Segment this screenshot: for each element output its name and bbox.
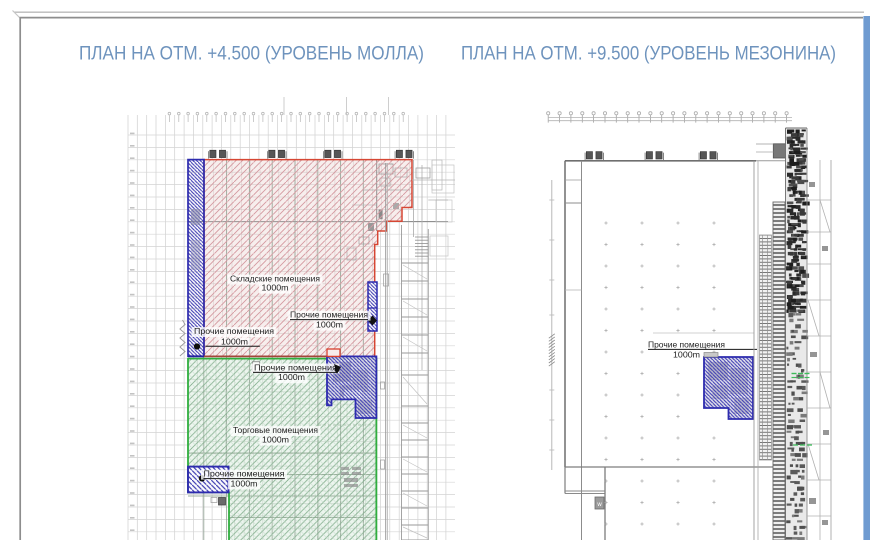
svg-text:Прочие помещения: Прочие помещения <box>648 339 725 349</box>
svg-text:1000m: 1000m <box>262 435 289 445</box>
svg-text:Прочие помещения: Прочие помещения <box>254 362 337 372</box>
svg-text:1000m: 1000m <box>316 320 343 330</box>
svg-text:ПЛАН НА ОТМ. +4.500 (УРОВЕНЬ М: ПЛАН НА ОТМ. +4.500 (УРОВЕНЬ МОЛЛА) <box>79 44 424 65</box>
svg-text:1000m: 1000m <box>262 283 289 293</box>
svg-text:1000m: 1000m <box>278 372 305 382</box>
svg-text:1000m: 1000m <box>673 349 700 359</box>
svg-text:ПЛАН НА ОТМ. +9.500 (УРОВЕНЬ М: ПЛАН НА ОТМ. +9.500 (УРОВЕНЬ МЕЗОНИНА) <box>461 44 836 65</box>
svg-text:Прочие помещения: Прочие помещения <box>290 310 368 320</box>
svg-text:1000m: 1000m <box>231 478 258 488</box>
svg-text:Прочие помещения: Прочие помещения <box>194 326 274 336</box>
svg-text:Торговые помещения: Торговые помещения <box>233 425 318 435</box>
svg-text:1000m: 1000m <box>221 336 248 346</box>
svg-text:w: w <box>596 502 602 508</box>
svg-text:Прочие помещения: Прочие помещения <box>204 469 285 479</box>
